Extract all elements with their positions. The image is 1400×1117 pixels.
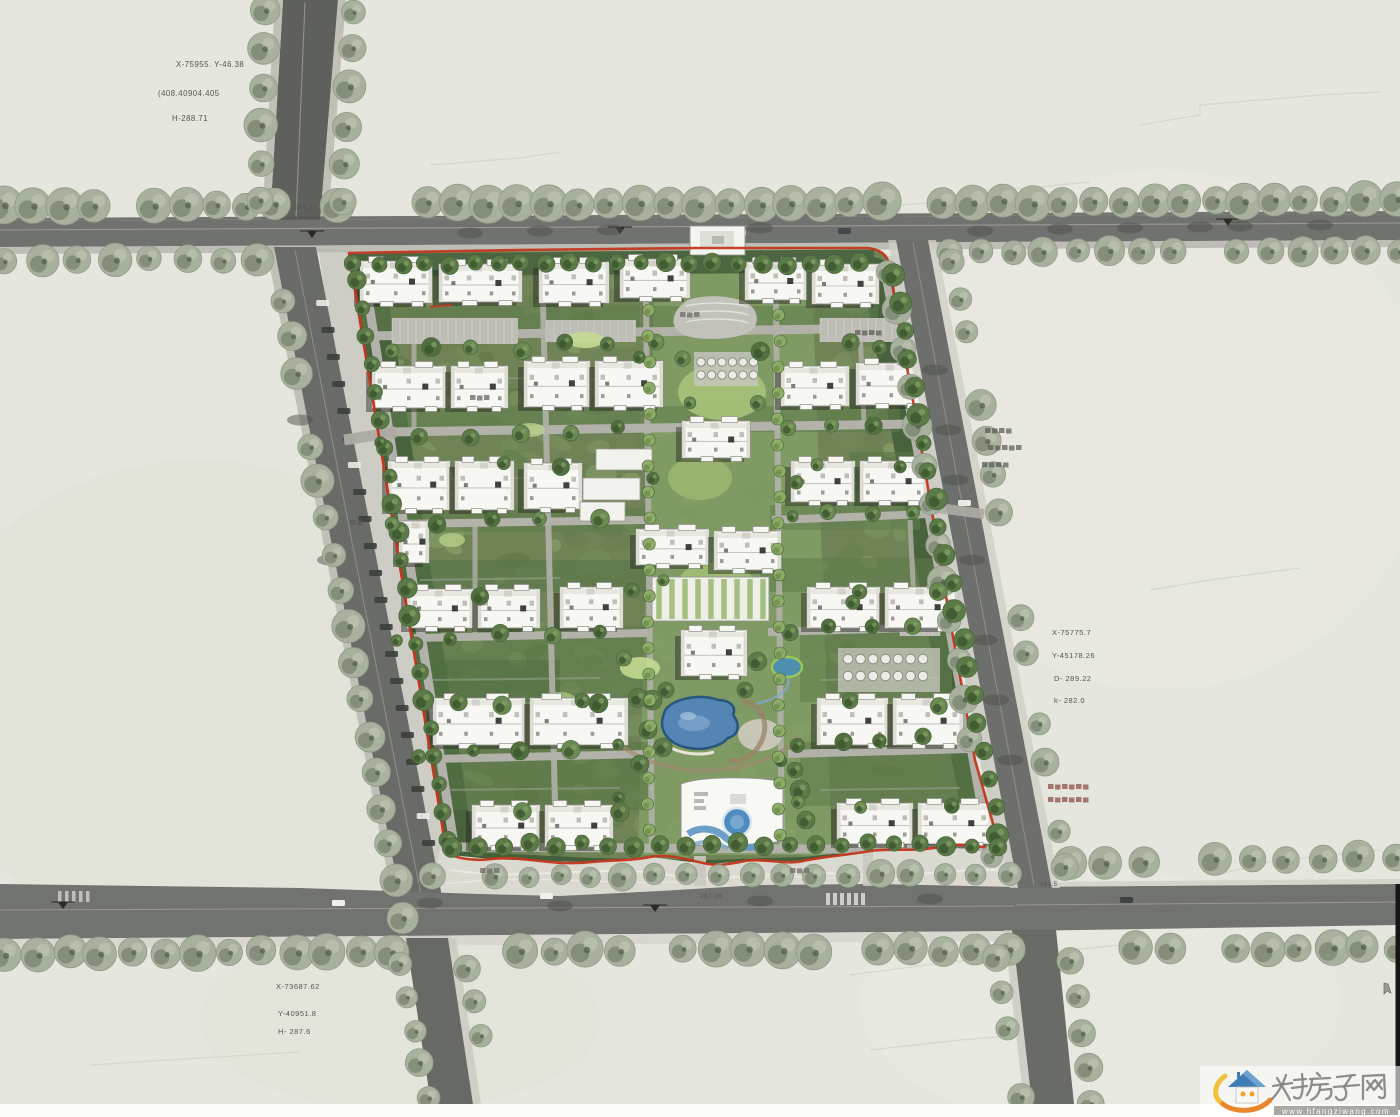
svg-text:www.hfangziwang.com: www.hfangziwang.com [1281, 1107, 1390, 1116]
svg-text:Y-45178.26: Y-45178.26 [1052, 651, 1095, 660]
svg-text:X-73687.62: X-73687.62 [276, 982, 320, 991]
svg-text:k- 282.0: k- 282.0 [1054, 696, 1085, 705]
svg-text:287.26: 287.26 [700, 893, 723, 900]
svg-text:D- 289.22: D- 289.22 [1054, 674, 1091, 683]
svg-text:(408.40904.405: (408.40904.405 [158, 89, 220, 98]
svg-text:261.5: 261.5 [1040, 882, 1058, 888]
svg-text:H- 287.6: H- 287.6 [278, 1027, 311, 1036]
svg-text:X-75955. Y-46.38: X-75955. Y-46.38 [176, 60, 244, 69]
svg-text:H-288.71: H-288.71 [172, 114, 208, 123]
svg-text:202.11: 202.11 [295, 204, 317, 211]
svg-text:Y-40951.8: Y-40951.8 [278, 1009, 316, 1018]
svg-text:X-75775.7: X-75775.7 [1052, 628, 1091, 637]
